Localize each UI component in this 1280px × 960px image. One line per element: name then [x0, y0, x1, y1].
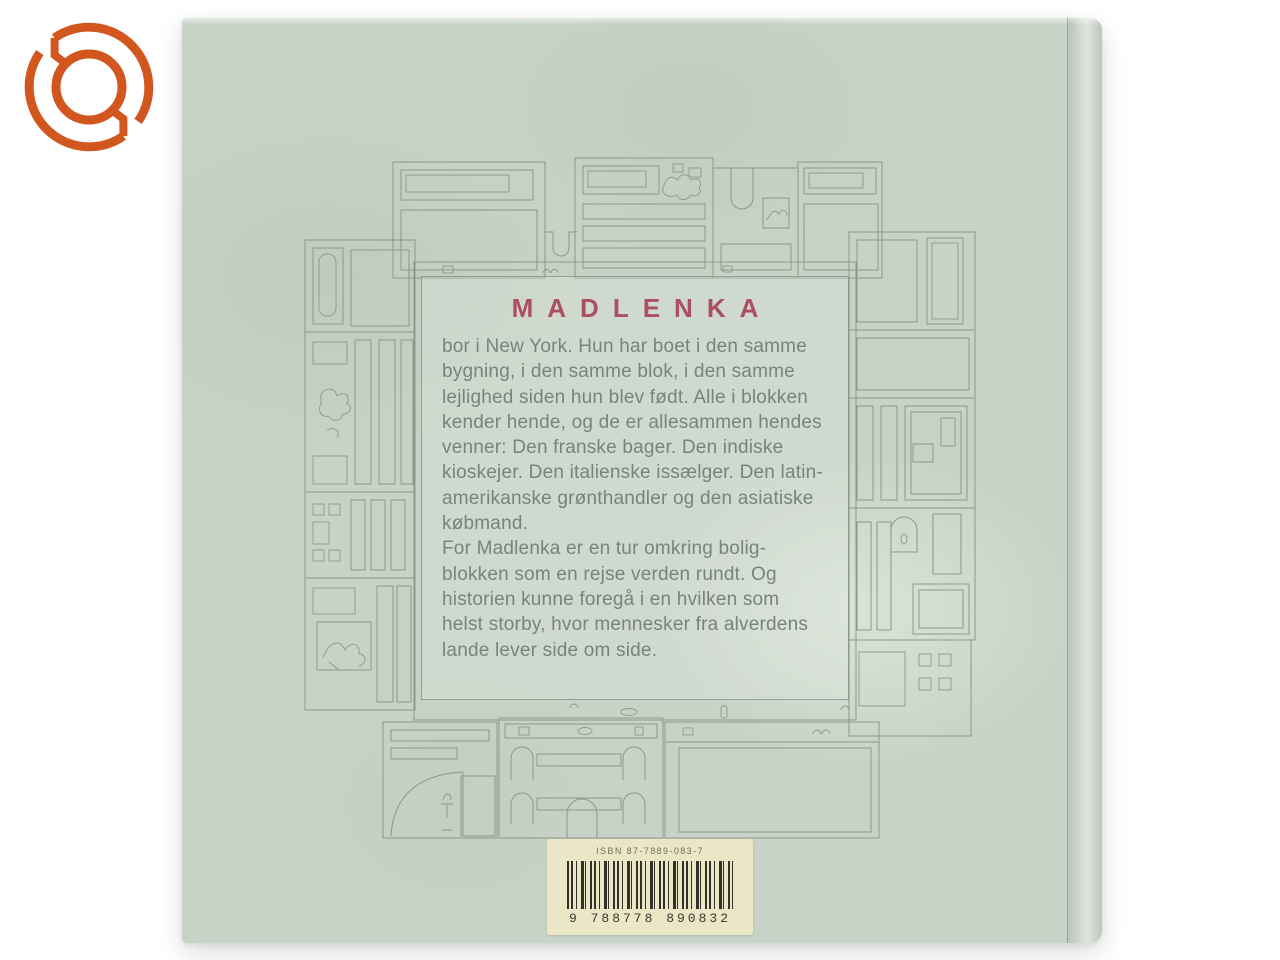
barcode-sticker: ISBN 87-7889-083-7 9 788778 890832: [547, 839, 753, 935]
barcode-digits: 9 788778 890832: [547, 911, 753, 926]
blurb-line: lande lever side om side.: [442, 638, 828, 663]
buildings-left-column: [305, 240, 415, 710]
buildings-bottom-row: [383, 718, 879, 838]
book-title: MADLENKA: [422, 293, 848, 324]
blurb-line: historien kunne foregå i en hvilken som: [442, 587, 828, 612]
book-fore-edge: [1067, 18, 1102, 943]
blurb-line: venner: Den franske bager. Den indiske: [442, 435, 828, 460]
blurb-line: bygning, i den samme blok, i den samme: [442, 359, 828, 384]
blurb-line: kender hende, og de er allesammen hendes: [442, 410, 828, 435]
product-photo: { "scene": { "background_color": "#fffff…: [0, 0, 1280, 960]
blurb-line: kioskejer. Den italienske issælger. Den …: [442, 460, 828, 485]
blurb-text: bor i New York. Hun har boet i den samme…: [422, 334, 848, 663]
orange-ring-logo-graphic: [20, 18, 158, 156]
book-back-cover: MADLENKA bor i New York. Hun har boet i …: [182, 18, 1102, 943]
barcode-bars: [567, 861, 733, 909]
buildings-top-row: [393, 158, 882, 278]
cover-top-edge: [182, 18, 1102, 25]
blurb-line: bor i New York. Hun har boet i den samme: [442, 334, 828, 359]
blurb-line: helst storby, hvor mennesker fra alverde…: [442, 612, 828, 637]
blurb-line: For Madlenka er en tur omkring bolig-: [442, 536, 828, 561]
isbn-label: ISBN 87-7889-083-7: [547, 839, 753, 856]
blurb-panel: MADLENKA bor i New York. Hun har boet i …: [421, 276, 849, 700]
orange-ring-logo: [20, 18, 158, 156]
blurb-line: lejlighed siden hun blev født. Alle i bl…: [442, 385, 828, 410]
buildings-right-column: [849, 232, 975, 736]
blurb-line: blokken som en rejse verden rundt. Og: [442, 562, 828, 587]
blurb-line: amerikanske grønthandler og den asiatisk…: [442, 486, 828, 511]
blurb-line: købmand.: [442, 511, 828, 536]
